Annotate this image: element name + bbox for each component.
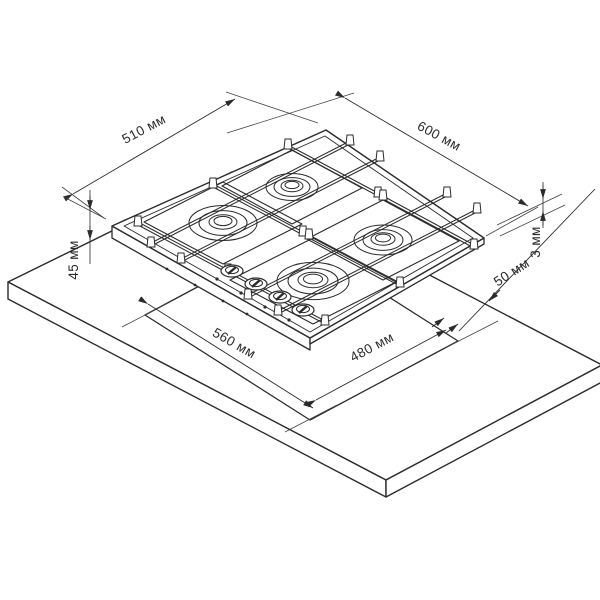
ext-line — [497, 194, 562, 225]
ext-line — [64, 197, 106, 219]
knob — [269, 291, 291, 303]
knob — [221, 265, 243, 277]
ext-line — [62, 187, 104, 218]
ext-line — [226, 92, 318, 123]
diagram-canvas: 510 мм 600 мм 45 мм 3 мм 560 мм — [0, 0, 600, 600]
installation-diagram: 510 мм 600 мм 45 мм 3 мм 560 мм — [0, 0, 600, 600]
dim-label-50: 50 мм — [491, 255, 532, 289]
dim-label-600: 600 мм — [415, 118, 464, 154]
dim-arrow — [489, 290, 500, 301]
knob — [292, 304, 314, 316]
knob — [245, 278, 267, 290]
dim-label-510: 510 мм — [120, 111, 169, 146]
dim-label-3: 3 мм — [528, 226, 543, 257]
dim-label-45: 45 мм — [66, 240, 81, 279]
